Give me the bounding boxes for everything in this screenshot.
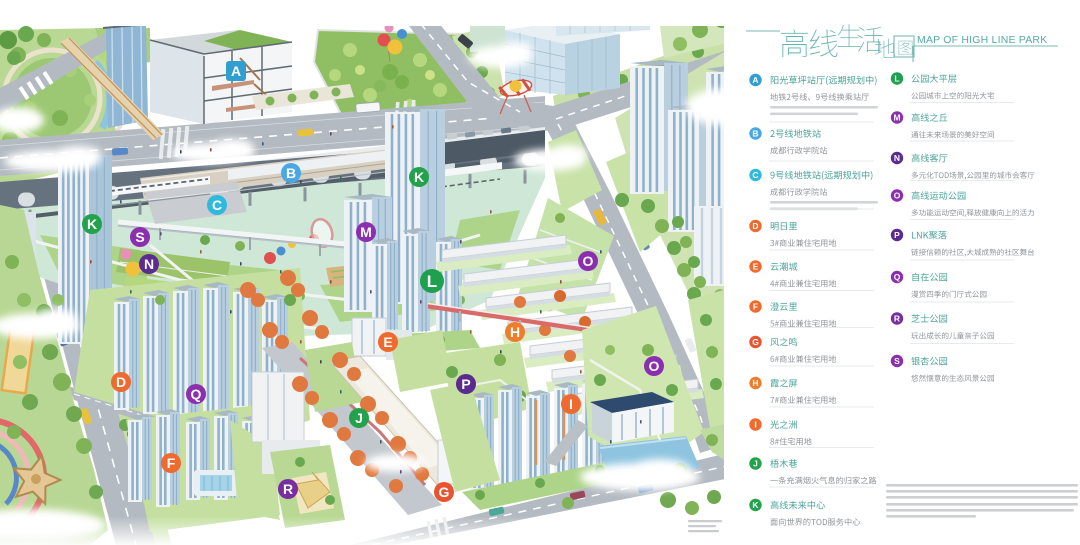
- svg-text:I: I: [569, 396, 573, 412]
- svg-text:H: H: [752, 378, 758, 388]
- svg-text:G: G: [752, 337, 759, 347]
- svg-text:F: F: [753, 302, 758, 312]
- svg-text:K: K: [414, 169, 424, 185]
- svg-text:L: L: [427, 272, 437, 291]
- svg-text:D: D: [116, 374, 126, 390]
- svg-text:N: N: [144, 256, 154, 272]
- svg-text:R: R: [283, 481, 293, 497]
- svg-text:O: O: [583, 253, 594, 269]
- svg-text:MAP OF HIGH LINE PARK: MAP OF HIGH LINE PARK: [917, 34, 1047, 46]
- svg-text:P: P: [894, 230, 900, 240]
- svg-text:Q: Q: [191, 386, 202, 402]
- svg-text:L: L: [894, 74, 899, 84]
- svg-text:P: P: [461, 376, 470, 392]
- svg-text:S: S: [894, 356, 900, 366]
- svg-text:E: E: [753, 262, 759, 272]
- svg-text:F: F: [167, 455, 176, 471]
- svg-text:M: M: [360, 224, 372, 240]
- svg-text:J: J: [355, 410, 363, 426]
- svg-text:C: C: [212, 197, 222, 213]
- svg-text:J: J: [753, 459, 758, 469]
- svg-text:H: H: [510, 324, 520, 340]
- svg-text:E: E: [383, 334, 392, 350]
- svg-text:R: R: [894, 314, 900, 324]
- svg-text:I: I: [754, 420, 756, 430]
- svg-text:G: G: [439, 484, 450, 500]
- svg-text:B: B: [286, 165, 296, 181]
- svg-text:N: N: [894, 153, 900, 163]
- svg-text:Q: Q: [894, 272, 901, 282]
- svg-text:O: O: [649, 358, 660, 374]
- svg-text:A: A: [231, 63, 241, 79]
- svg-text:K: K: [87, 216, 97, 232]
- svg-text:A: A: [752, 75, 758, 85]
- svg-text:C: C: [752, 170, 758, 180]
- svg-text:K: K: [752, 500, 759, 510]
- svg-text:D: D: [752, 221, 758, 231]
- svg-text:M: M: [893, 113, 900, 123]
- svg-text:O: O: [894, 191, 901, 201]
- svg-text:B: B: [752, 129, 758, 139]
- svg-text:S: S: [135, 229, 144, 245]
